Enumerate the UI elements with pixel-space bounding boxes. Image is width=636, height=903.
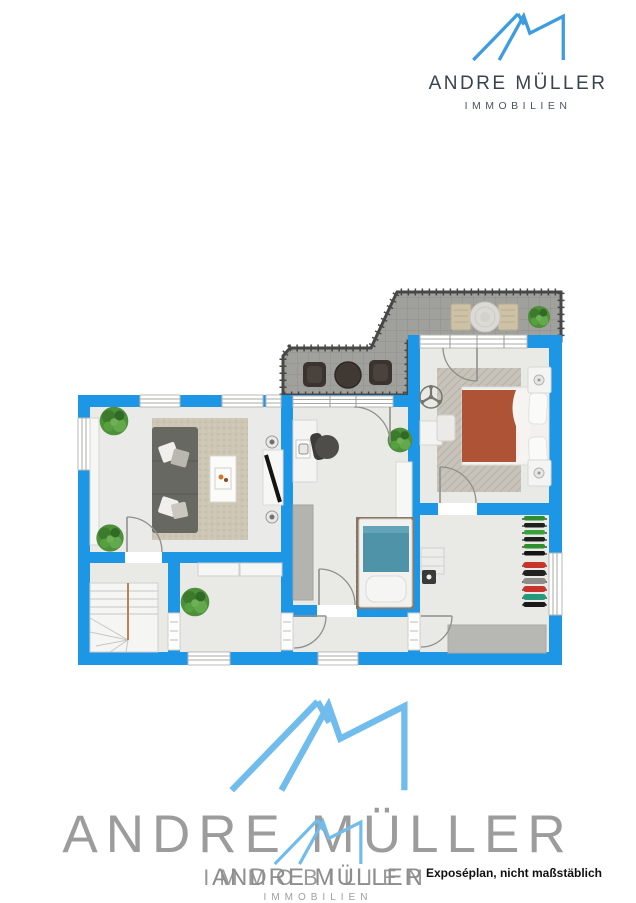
shelf — [396, 462, 412, 518]
safe-dial — [427, 575, 432, 580]
lounger — [498, 304, 518, 330]
balcony-chair-cushion — [373, 364, 388, 381]
window — [549, 553, 562, 615]
vanity-chair — [437, 415, 455, 441]
corridor-floor — [293, 617, 408, 652]
speaker-cone — [270, 515, 275, 520]
staircase — [90, 583, 158, 652]
pillow — [366, 576, 406, 602]
fruit — [219, 475, 224, 480]
coffee-table — [210, 456, 236, 502]
door-gap — [438, 503, 477, 515]
hall-cabinet — [240, 563, 282, 576]
window — [78, 418, 90, 470]
speaker-cone — [270, 440, 275, 445]
lounger — [451, 304, 471, 330]
window — [140, 395, 180, 407]
plant — [528, 306, 550, 328]
cased-opening — [408, 613, 420, 650]
monitor-screen — [299, 444, 308, 454]
double-bed-blanket — [462, 390, 516, 462]
plant — [100, 407, 129, 436]
balcony-table — [335, 362, 361, 388]
lamp-center — [538, 379, 541, 382]
cased-opening — [281, 613, 293, 650]
floorplan-image — [0, 0, 636, 900]
window — [266, 395, 281, 407]
cabinet — [293, 505, 313, 600]
plant — [388, 428, 413, 453]
terrace-table-center — [480, 312, 490, 322]
fruit — [224, 478, 228, 482]
wardrobe — [448, 625, 546, 653]
expose-page: ANDRE MÜLLER IMMOBILIEN — [0, 0, 636, 900]
pillow — [171, 501, 189, 519]
window — [318, 652, 358, 665]
balcony-chair-cushion — [307, 366, 322, 383]
balcony-window-band-middle-room — [293, 396, 393, 407]
window — [188, 652, 230, 665]
plant — [181, 588, 210, 617]
hall-cabinet — [198, 563, 239, 576]
cased-opening — [168, 613, 180, 650]
sideboard — [90, 418, 99, 545]
balcony-window-band-bedroom — [420, 335, 527, 348]
door-gap — [125, 552, 162, 563]
stair-outline — [90, 583, 158, 652]
plant — [96, 524, 123, 551]
lamp-center — [538, 472, 541, 475]
pillow — [528, 393, 548, 425]
blanket-fold — [363, 526, 409, 533]
scale-disclaimer: Exposéplan, nicht maßstäblich — [426, 866, 602, 880]
office-chair — [315, 435, 339, 459]
window — [222, 395, 263, 407]
